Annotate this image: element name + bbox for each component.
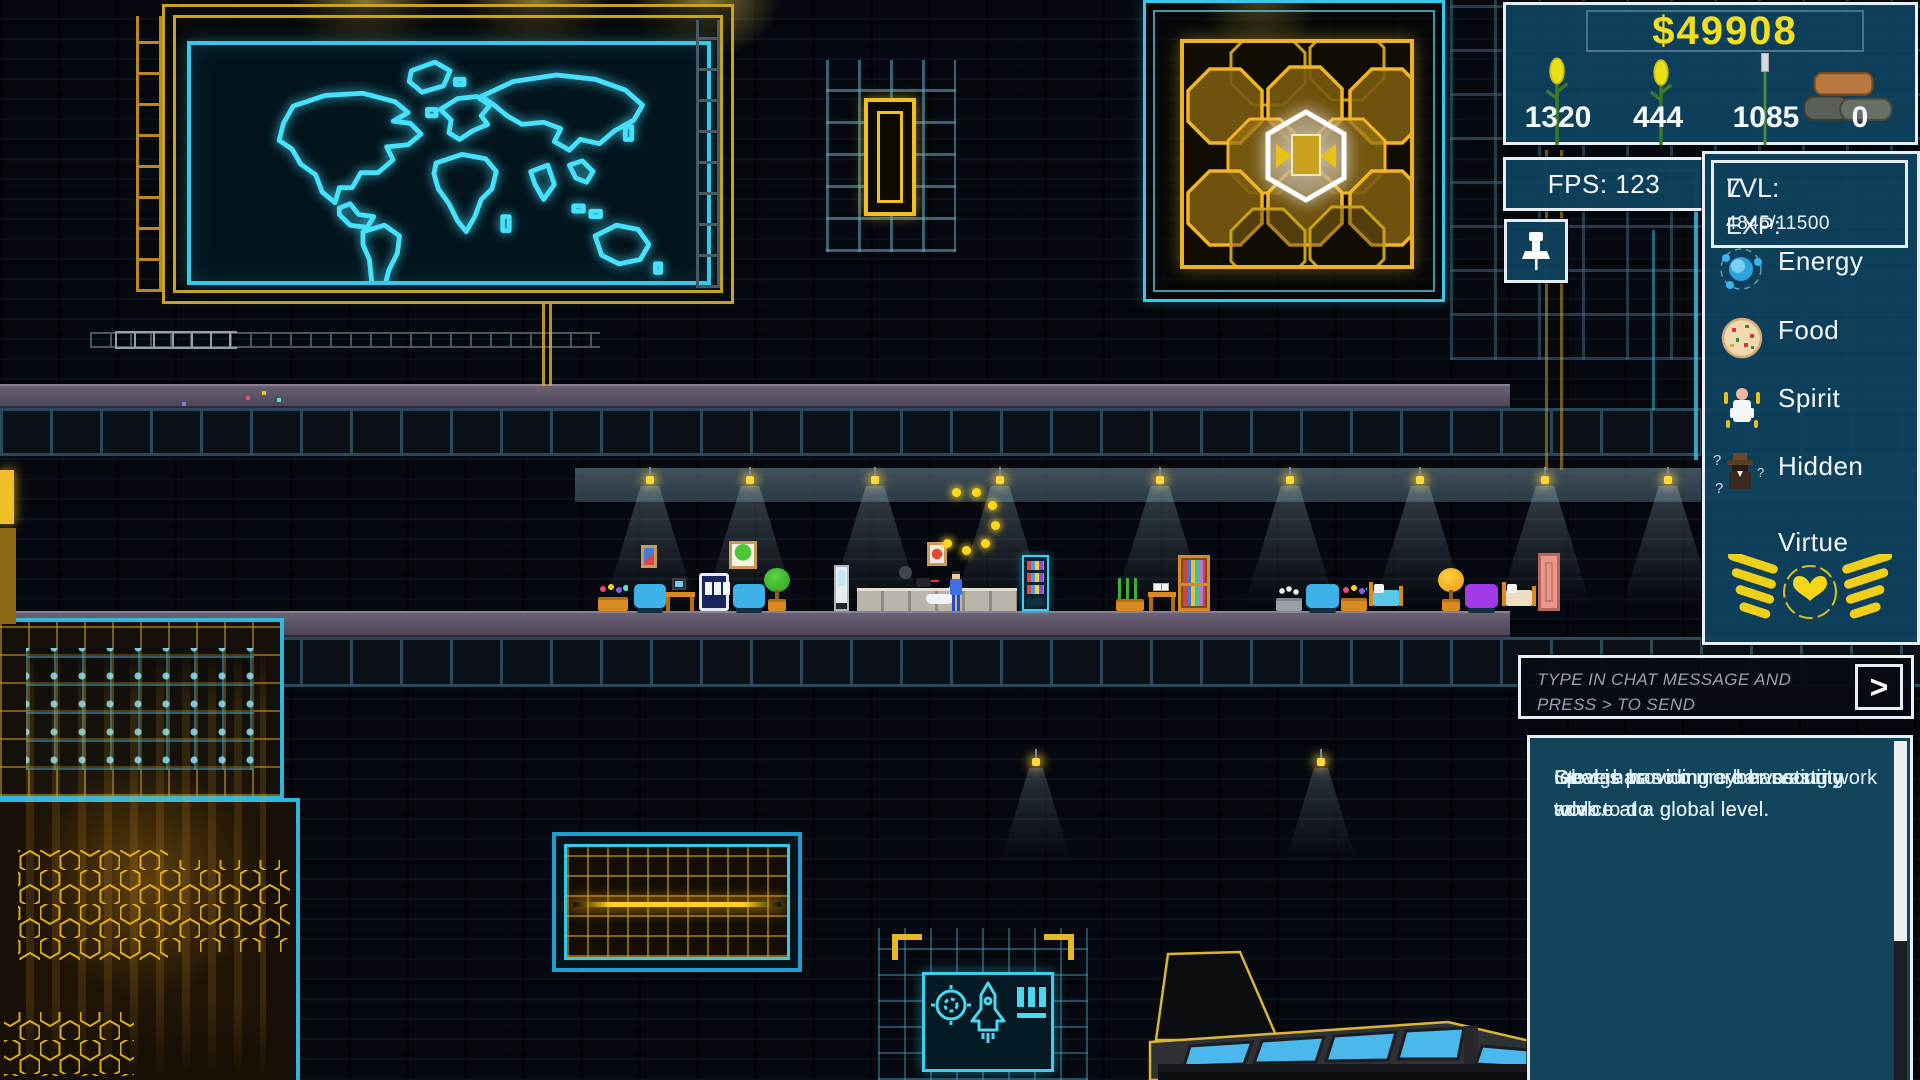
- bookshelf[interactable]: [1178, 555, 1210, 611]
- corner-bracket: [1044, 934, 1074, 960]
- exp-value: 4845/11500: [1726, 213, 1830, 235]
- wall-painting-abstract[interactable]: [641, 545, 657, 568]
- honeycomb: [1180, 39, 1414, 269]
- pizza-icon: [1720, 316, 1764, 360]
- chat-scrollbar[interactable]: [1894, 741, 1907, 1080]
- ceiling-lamp: [1156, 476, 1164, 484]
- reading-desk[interactable]: [1148, 592, 1176, 597]
- sofa-blue[interactable]: [1306, 584, 1339, 608]
- spy-icon: ? ? ?: [1713, 451, 1771, 501]
- atom-icon: [1718, 246, 1764, 292]
- potted-tree[interactable]: [764, 568, 790, 592]
- chat-log: Iqbal is providing cyber security advice…: [1527, 735, 1913, 1080]
- meditating-person-icon: [1722, 384, 1762, 430]
- stat-label: Food: [1778, 315, 1839, 346]
- sofa-purple[interactable]: [1465, 584, 1498, 608]
- pillow: [1507, 584, 1517, 593]
- wall-painting-tree[interactable]: [729, 541, 757, 569]
- bed-cyan[interactable]: [1373, 590, 1399, 606]
- energy-orb: [943, 539, 952, 548]
- fps-counter: FPS: 123: [1503, 157, 1705, 211]
- money-frame: $49908: [1586, 10, 1864, 52]
- ornament-room: [552, 832, 802, 972]
- energy-orb: [991, 521, 1000, 530]
- resource-count: 1320: [1506, 101, 1610, 135]
- upper-walkway: [0, 384, 1510, 408]
- tree-pot: [768, 599, 786, 611]
- open-book[interactable]: [1153, 583, 1169, 591]
- flower-planter[interactable]: [1341, 598, 1367, 611]
- resource-count: 1085: [1716, 101, 1816, 135]
- bed-beige[interactable]: [1506, 590, 1532, 606]
- ornament-pattern: [564, 844, 790, 960]
- winged-heart-icon: [1725, 554, 1895, 628]
- hex-chamber: [1143, 0, 1445, 302]
- player-stats-panel: LVL: 7 EXP: 4845/11500 Energy: [1702, 151, 1920, 645]
- spirit-bar: [1778, 417, 1904, 430]
- ceiling-lamp: [996, 476, 1004, 484]
- chat-message: Iqbal is providing cyber security advice…: [1554, 762, 1888, 827]
- pushpin-icon: [1519, 230, 1553, 272]
- vent-squares: [115, 331, 237, 349]
- desk[interactable]: [665, 592, 695, 597]
- npc-worker[interactable]: [950, 571, 962, 611]
- elevator-door[interactable]: [864, 98, 916, 216]
- signal-bars-icon: [1017, 987, 1046, 1018]
- stat-label: Spirit: [1778, 383, 1840, 414]
- food-bar: [1778, 349, 1904, 362]
- computer-monitor[interactable]: [672, 578, 686, 590]
- gold-edge-light: [0, 470, 14, 524]
- power-cable: [549, 304, 552, 386]
- chat-input[interactable]: TYPE IN CHAT MESSAGE AND PRESS > TO SEND…: [1518, 655, 1914, 719]
- flowers: [1341, 585, 1367, 599]
- world-map: [191, 45, 707, 281]
- energy-orb: [988, 501, 997, 510]
- npc-legs: [952, 595, 960, 611]
- cyan-pipe: [1694, 168, 1698, 460]
- resources-panel: $49908 1320 444 1085 0: [1503, 2, 1918, 145]
- level-box: LVL: 7 EXP: 4845/11500: [1711, 160, 1908, 248]
- sofa-blue[interactable]: [733, 584, 765, 608]
- flowers: [598, 584, 628, 598]
- orange-tree[interactable]: [1438, 568, 1464, 592]
- gold-edge-tiles: [0, 528, 16, 624]
- energy-orb: [952, 488, 961, 497]
- resource-count: 0: [1838, 101, 1882, 135]
- pillow: [1374, 584, 1384, 593]
- elevator-shaft: [826, 60, 956, 252]
- hanging-lamp: [1032, 758, 1040, 766]
- cyan-pipe: [1652, 230, 1655, 410]
- svg-text:?: ?: [1713, 452, 1721, 469]
- game-stage: $49908 1320 444 1085 0 FPS: 123: [0, 0, 1920, 1080]
- chevron-right-icon: >: [1870, 669, 1889, 706]
- sofa-blue[interactable]: [634, 584, 666, 608]
- fps-text: FPS: 123: [1548, 169, 1660, 200]
- ceiling-lamp: [746, 476, 754, 484]
- particle: [262, 391, 266, 395]
- gold-laser-beam: [573, 902, 781, 907]
- fridge[interactable]: [834, 565, 849, 611]
- energy-orb: [962, 546, 971, 555]
- particle: [246, 396, 250, 400]
- energy-bar: [1778, 280, 1904, 293]
- chat-scrollbar-thumb[interactable]: [1894, 741, 1907, 941]
- svg-text:?: ?: [1757, 465, 1764, 480]
- console-display: [925, 975, 1051, 1069]
- lab-machine[interactable]: [699, 573, 729, 611]
- svg-text:?: ?: [1715, 480, 1723, 497]
- rocket-icon: [972, 983, 1004, 1043]
- chat-placeholder: TYPE IN CHAT MESSAGE AND PRESS > TO SEND: [1537, 668, 1837, 717]
- ceiling-lamp: [646, 476, 654, 484]
- world-map-screen[interactable]: [187, 41, 711, 285]
- steam-puff: [899, 566, 912, 579]
- ship-console-screen[interactable]: [922, 972, 1054, 1072]
- bamboo-planter[interactable]: [1116, 599, 1144, 611]
- spaceship[interactable]: [1128, 942, 1558, 1080]
- vending-machine[interactable]: [1022, 555, 1049, 611]
- hanging-lamp: [1317, 758, 1325, 766]
- room-door[interactable]: [1538, 553, 1560, 611]
- particle: [182, 402, 186, 406]
- power-cable: [542, 304, 545, 386]
- npc-body: [950, 579, 962, 595]
- gold-ladder-tiles: [136, 16, 162, 292]
- send-button[interactable]: >: [1855, 664, 1903, 710]
- portal-core: [1268, 112, 1344, 200]
- honeycomb-frame: [1180, 39, 1414, 269]
- stat-label: Hidden: [1778, 451, 1863, 482]
- pin-button[interactable]: [1504, 219, 1568, 283]
- ceiling-lamp: [871, 476, 879, 484]
- particle: [277, 398, 281, 402]
- ceiling-lamp: [1286, 476, 1294, 484]
- energy-orb: [981, 539, 990, 548]
- white-flowers: [1277, 586, 1301, 600]
- ceiling-lamp: [1664, 476, 1672, 484]
- tree-pot: [1442, 599, 1460, 611]
- money-value: $49908: [1588, 12, 1862, 50]
- level-value: 7: [1726, 173, 1741, 204]
- world-map-room: [162, 4, 734, 304]
- hidden-bar: [1778, 483, 1904, 498]
- tile-row-upper: [0, 408, 1920, 456]
- cooking-pot[interactable]: [916, 578, 931, 587]
- resource-count: 444: [1612, 101, 1704, 135]
- npc-head: [952, 571, 960, 579]
- stat-label: Energy: [1778, 246, 1863, 277]
- chat-messages: Iqbal is providing cyber security advice…: [1530, 738, 1888, 1080]
- energy-orb: [972, 488, 981, 497]
- gray-ladder-tiles: [696, 20, 720, 288]
- ceiling-lamp: [1416, 476, 1424, 484]
- flower-planter[interactable]: [598, 597, 628, 611]
- warm-glow: [30, 760, 260, 1000]
- bamboo-stalks: [1118, 578, 1142, 600]
- corner-bracket: [892, 934, 922, 960]
- ceiling-lamp: [1541, 476, 1549, 484]
